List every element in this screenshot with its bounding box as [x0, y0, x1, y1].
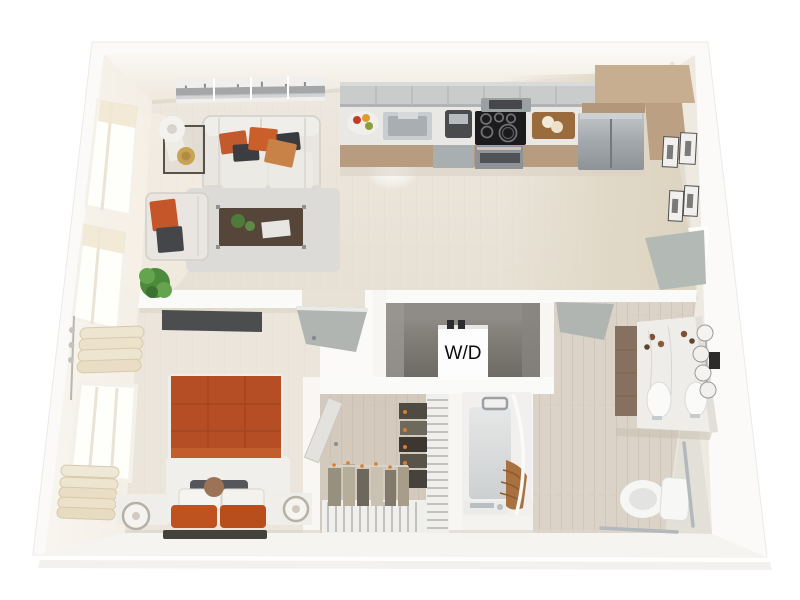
svg-text:W/D: W/D — [445, 343, 482, 364]
